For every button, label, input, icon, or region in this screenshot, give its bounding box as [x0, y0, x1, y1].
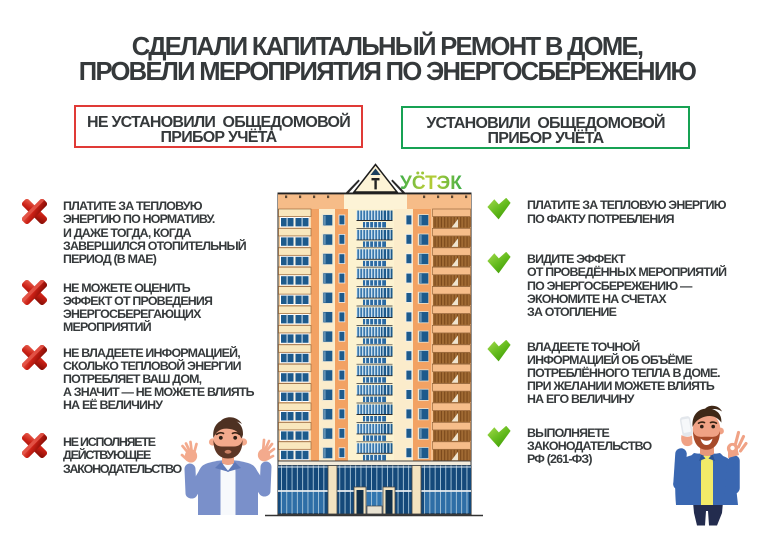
svg-text:УСТЭК: УСТЭК: [400, 173, 462, 194]
